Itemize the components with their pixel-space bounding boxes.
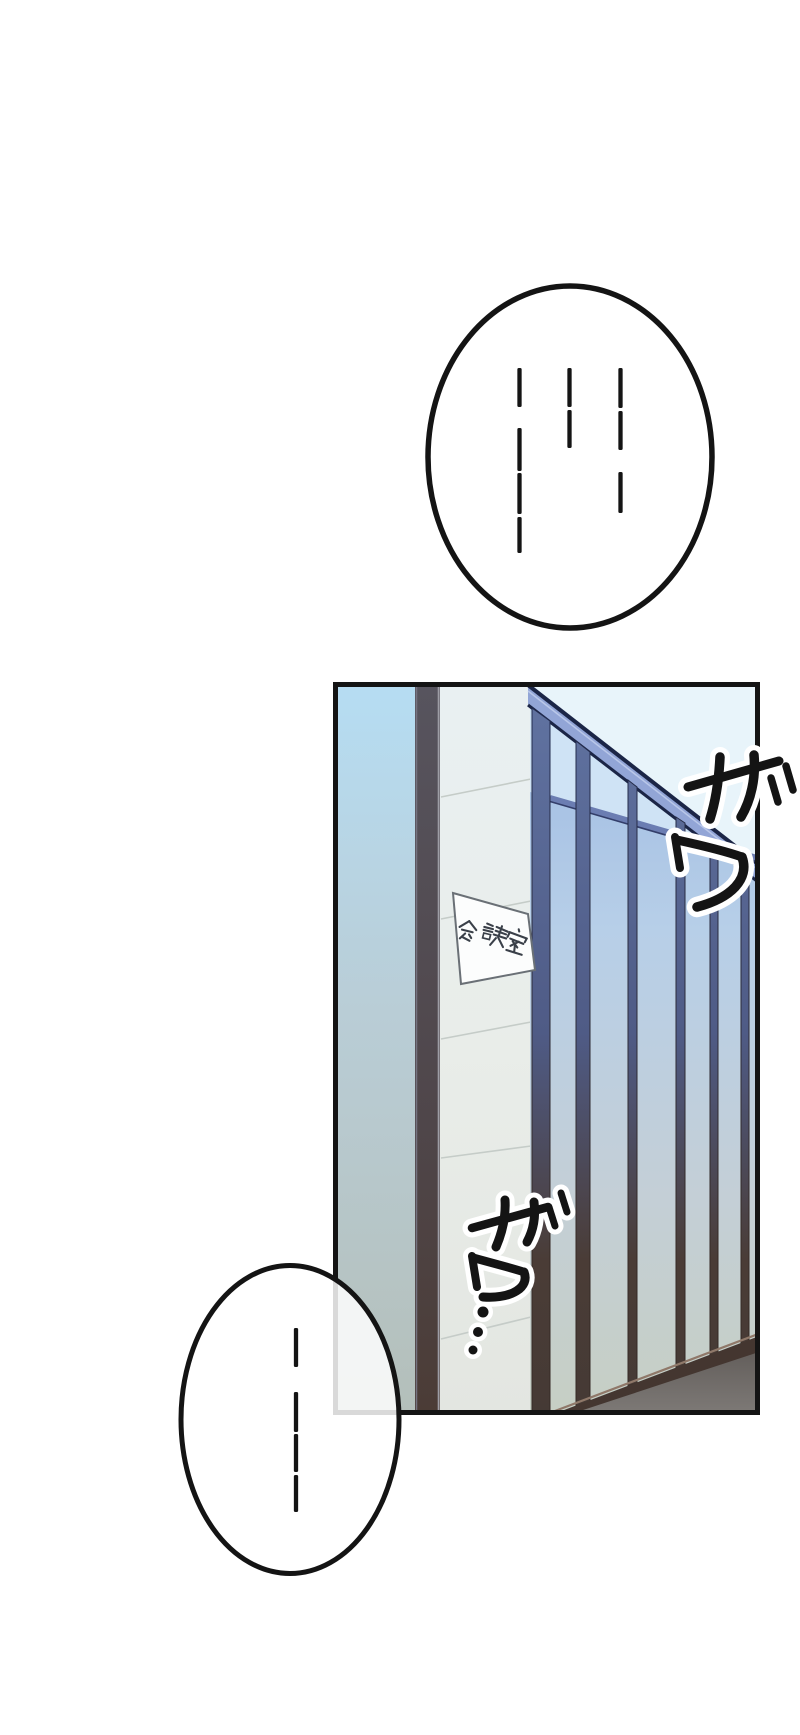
silence-dash xyxy=(567,368,571,407)
silence-dash xyxy=(517,428,521,471)
silence-dashes xyxy=(294,1328,298,1512)
silence-dash xyxy=(618,368,622,408)
silence-dash xyxy=(618,411,622,450)
manga-page: 会議室 ザワ xyxy=(0,0,800,1735)
bubble-outline xyxy=(428,286,712,628)
silence-dash xyxy=(618,472,622,513)
silence-dash xyxy=(294,1392,298,1432)
speech-bubble-top: …… xyxy=(428,286,712,628)
silence-dash xyxy=(567,410,571,448)
bubble-outline xyxy=(181,1266,399,1574)
pillar-dark-edge xyxy=(415,683,440,1414)
silence-dash xyxy=(294,1328,298,1367)
silence-dash xyxy=(517,368,521,407)
silence-dash xyxy=(294,1475,298,1512)
page-scene: 会議室 ザワ xyxy=(0,0,800,1735)
silence-dash xyxy=(294,1434,298,1472)
silence-dash xyxy=(517,473,521,514)
speech-bubble-bottom: …… xyxy=(181,1266,399,1574)
silence-dash xyxy=(517,517,521,553)
corner-frame xyxy=(532,708,550,1415)
